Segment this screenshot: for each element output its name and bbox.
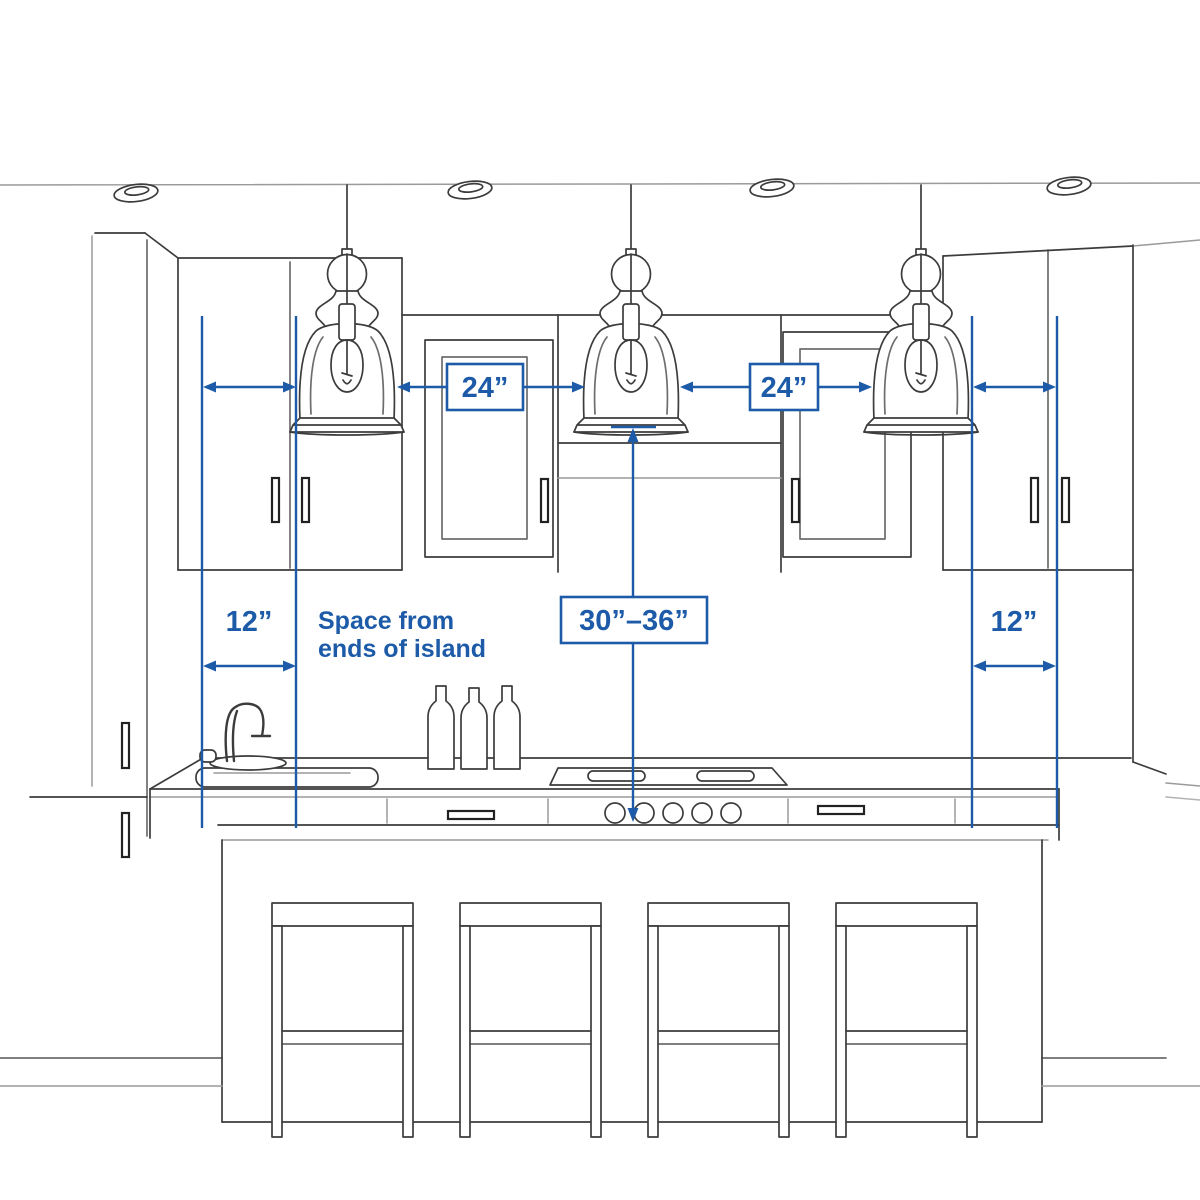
note-line-1: Space from [318, 607, 454, 635]
bar-stools [272, 903, 977, 1137]
drawer-handle [818, 806, 864, 814]
cabinet-handle [541, 479, 548, 522]
dimension-value: 24” [462, 372, 509, 404]
recessed-light-icon [447, 179, 493, 201]
kitchen-pendant-spacing-diagram: 24” 24” 30”–36” 12” 12” Space from ends … [0, 0, 1200, 1200]
bar-stool [460, 903, 601, 1137]
ceiling [0, 175, 1200, 204]
cooktop-knob [721, 803, 741, 823]
cabinet-handle [792, 479, 799, 522]
cabinet-handle [272, 478, 279, 522]
cooktop-knob [692, 803, 712, 823]
dimension-label-24-left: 24” [447, 364, 523, 410]
recessed-light-icon [749, 177, 795, 199]
dimension-label-24-right: 24” [750, 364, 818, 410]
sink [196, 768, 378, 787]
dimension-label-12-right: 12” [991, 606, 1038, 638]
cooktop-knob [663, 803, 683, 823]
right-wall [1133, 240, 1200, 800]
recessed-light-icon [1046, 175, 1092, 197]
note-space-from-ends: Space from ends of island [318, 607, 486, 663]
cooktop-knob [634, 803, 654, 823]
cabinet-handle [302, 478, 309, 522]
cooktop-knob [605, 803, 625, 823]
note-line-2: ends of island [318, 635, 486, 663]
cabinet-handle [1031, 478, 1038, 522]
faucet [200, 704, 286, 770]
drawer-handle [448, 811, 494, 819]
bar-stool [272, 903, 413, 1137]
bar-stool [648, 903, 789, 1137]
diagram-canvas: 24” 24” 30”–36” 12” 12” Space from ends … [0, 0, 1200, 1200]
pendant-light-center [574, 185, 688, 435]
dimension-label-12-left: 12” [226, 606, 273, 638]
bar-stool [836, 903, 977, 1137]
cabinet-handle [122, 813, 129, 857]
dimension-label-height: 30”–36” [561, 597, 707, 643]
cooktop [550, 768, 787, 823]
dimension-value: 30”–36” [579, 605, 689, 637]
pendant-light-left [290, 185, 404, 435]
left-wall-cabinet [30, 233, 178, 857]
dimension-value: 24” [761, 372, 808, 404]
cabinet-handle [1062, 478, 1069, 522]
bottles [428, 686, 520, 769]
pendant-light-right [864, 185, 978, 435]
cabinet-handle [122, 723, 129, 768]
